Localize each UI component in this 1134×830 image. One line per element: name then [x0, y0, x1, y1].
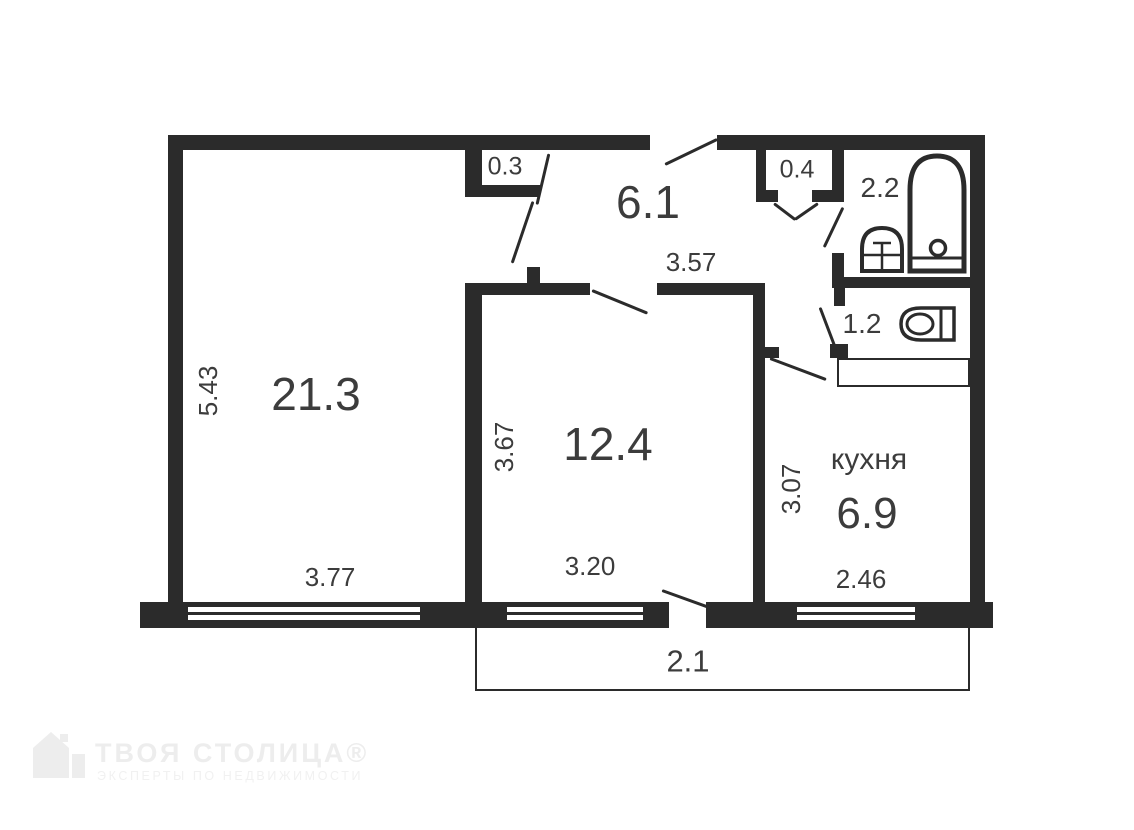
watermark-title: ТВОЯ СТОЛИЦА®: [95, 738, 369, 769]
door-swing-toilet: [819, 307, 838, 350]
door-swing-entrance: [664, 138, 718, 166]
wall: [657, 283, 765, 295]
door-swing-balcony: [661, 589, 712, 610]
door-swing-kitchen: [769, 357, 826, 381]
wall: [834, 288, 845, 306]
kitchen-area-label: 6.9: [836, 492, 897, 536]
ventilation-shaft: [837, 358, 970, 387]
living-width-dim: 3.77: [305, 564, 356, 590]
sink-icon: [859, 225, 905, 274]
hallway-area-label: 6.1: [616, 179, 680, 225]
kitchen-width-dim: 2.46: [836, 566, 887, 592]
wall: [753, 295, 765, 605]
bedroom-width-dim: 3.20: [565, 553, 616, 579]
wall: [168, 135, 650, 150]
bathroom-area-label: 2.2: [861, 174, 900, 202]
door-swing-bedroom: [591, 289, 648, 315]
wall: [420, 602, 507, 628]
living-area-label: 21.3: [271, 371, 361, 417]
wall: [706, 602, 797, 628]
wall: [643, 602, 669, 628]
wall: [168, 135, 183, 602]
wall: [970, 135, 985, 628]
window-sill: [140, 602, 188, 628]
hallway-width-dim: 3.57: [666, 249, 717, 275]
wall: [832, 277, 985, 288]
door-swing-living: [511, 201, 535, 264]
wall-stub: [765, 347, 779, 358]
window-pane-line: [797, 612, 915, 615]
toilet-icon: [896, 305, 958, 343]
window-kitchen: [797, 602, 915, 628]
window-sill: [915, 602, 993, 628]
wall: [465, 283, 482, 602]
window-living: [188, 602, 420, 628]
living-height-dim: 5.43: [195, 366, 221, 417]
bedroom-height-dim: 3.67: [491, 422, 517, 473]
watermark-subtitle: ЭКСПЕРТЫ ПО НЕДВИЖИМОСТИ: [97, 769, 363, 783]
wall: [465, 185, 540, 197]
wall-stub: [812, 190, 844, 202]
door-swing-storage-small: [536, 154, 551, 205]
wall: [465, 283, 590, 295]
door-swing-bathroom: [823, 207, 845, 248]
floor-plan: 21.3 5.43 3.77 0.3 6.1 3.57 0.4 2.2 1.2 …: [0, 0, 1134, 830]
toilet-area-label: 1.2: [843, 310, 882, 338]
wall: [717, 135, 985, 150]
window-pane-line: [188, 612, 420, 615]
storage-area-label: 0.4: [780, 158, 815, 183]
agency-logo-icon: [30, 728, 88, 780]
door-swing-storage-left: [773, 202, 796, 221]
bedroom-area-label: 12.4: [563, 421, 653, 467]
window-pane-line: [507, 612, 643, 615]
kitchen-name-label: кухня: [831, 445, 907, 475]
window-bedroom: [507, 602, 643, 628]
wall-stub: [756, 190, 778, 202]
bathtub-icon: [906, 152, 968, 275]
door-swing-storage-right: [794, 202, 819, 220]
balcony-outline: [475, 628, 970, 691]
storage-small-area-label: 0.3: [488, 155, 523, 180]
balcony-area-label: 2.1: [666, 646, 709, 677]
kitchen-height-dim: 3.07: [778, 464, 804, 515]
